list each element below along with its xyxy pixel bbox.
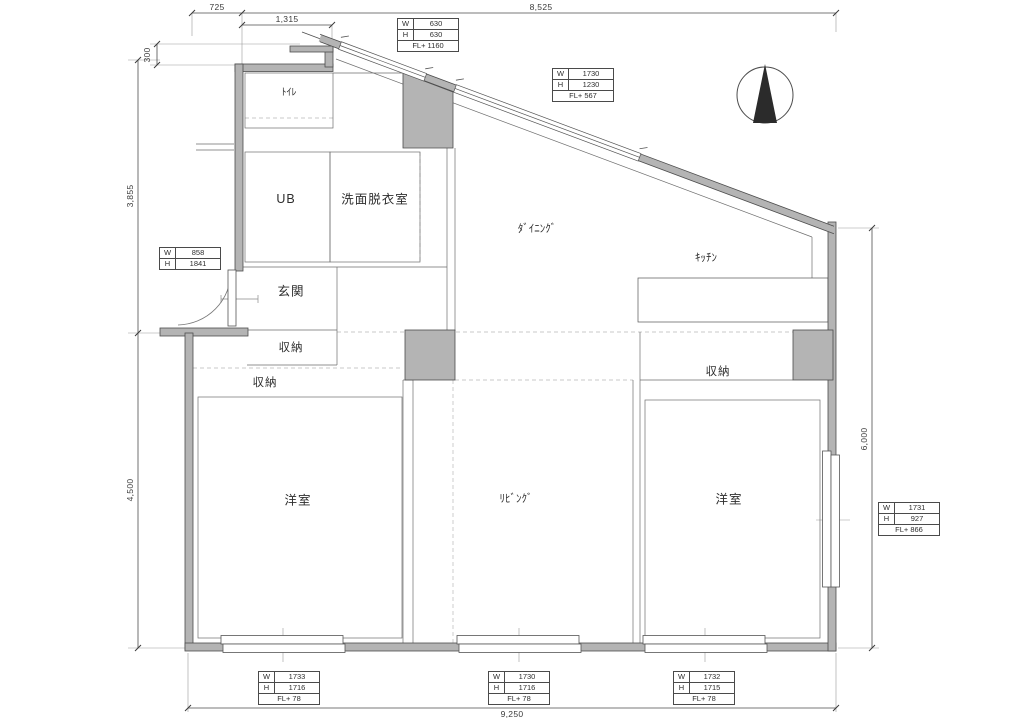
dim-bottom-width: 9,250 [501,709,524,719]
bottom-left-window [223,644,345,653]
room-label-washroom: 洗面脱衣室 [341,189,409,208]
opening-table-slant-large: W1730 H1230 FL+ 567 [552,68,614,102]
dim-top-left: 725 [209,2,224,12]
room-label-storage-entrance: 収納 [279,339,304,355]
floorplan-linework [0,0,1024,724]
room-label-bedroom-left: 洋室 [284,490,311,509]
bottom-left-window [221,636,343,645]
windows [221,451,840,653]
room-label-living: ﾘﾋﾞﾝｸﾞ [500,490,533,506]
opening-table-entrance-door: W858 H1841 [159,247,221,270]
room-label-entrance: 玄関 [277,281,304,300]
dim-left-lower: 4,500 [125,479,135,502]
opening-table-bottom-right: W1732 H1715 FL+ 78 [673,671,735,705]
bottom-center-window [457,636,579,645]
room-label-kitchen: ｷｯﾁﾝ [695,249,717,265]
room-label-storage-left: 収納 [253,374,278,390]
right-window [823,451,832,587]
exterior-walls [160,46,836,651]
dim-top-inner: 1,315 [276,14,299,24]
opening-table-bottom-center: W1730 H1716 FL+ 78 [488,671,550,705]
opening-table-bottom-left: W1733 H1716 FL+ 78 [258,671,320,705]
pillar [405,330,455,380]
room-label-bedroom-right: 洋室 [715,489,742,508]
floorplan-canvas: ﾄｲﾚ UB 洗面脱衣室 玄関 収納 収納 ﾀﾞｲﾆﾝｸﾞ ｷｯﾁﾝ 収納 洋室… [0,0,1024,724]
bottom-right-window [643,636,765,645]
room-label-toilet: ﾄｲﾚ [282,84,297,99]
pillar [793,330,833,380]
dim-left-offset: 300 [142,47,152,62]
room-label-storage-right: 収納 [706,363,731,379]
dim-top-main: 8,525 [530,2,553,12]
bottom-right-window [645,644,767,653]
dim-left-upper: 3,855 [125,185,135,208]
entrance-door [178,270,236,326]
opening-table-slant-small: W630 H630 FL+ 1160 [397,18,459,52]
dim-right-height: 6,000 [859,428,869,451]
slant-window-large [452,76,648,162]
north-arrow-icon [737,64,793,123]
opening-table-right-window: W1731 H927 FL+ 866 [878,502,940,536]
room-label-dining: ﾀﾞｲﾆﾝｸﾞ [518,220,557,236]
bottom-center-window [459,644,581,653]
room-label-unit-bath: UB [276,192,295,206]
right-window [831,455,840,587]
